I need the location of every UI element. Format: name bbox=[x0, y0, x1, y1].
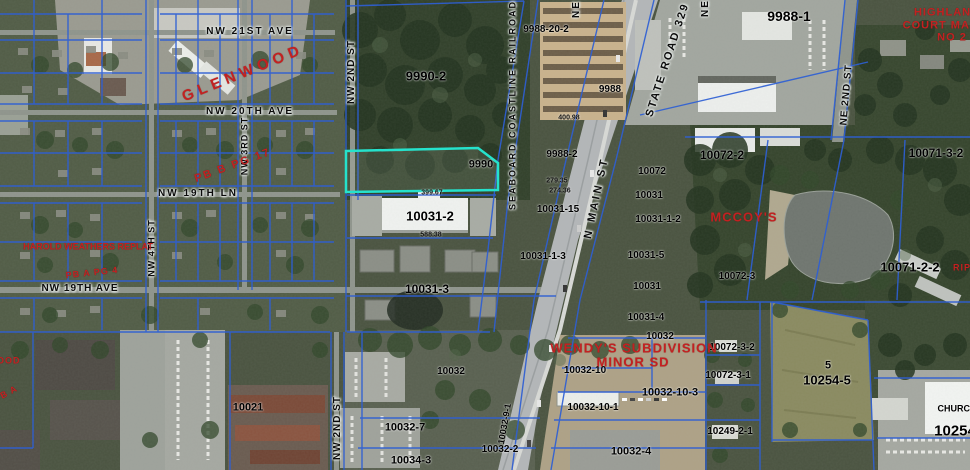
map-canvas[interactable]: NW 21ST AVENW 20TH AVENW 19TH LNNW 19TH … bbox=[0, 0, 970, 470]
satellite-imagery bbox=[0, 0, 970, 470]
highlighted-parcel-outline[interactable] bbox=[346, 148, 498, 192]
